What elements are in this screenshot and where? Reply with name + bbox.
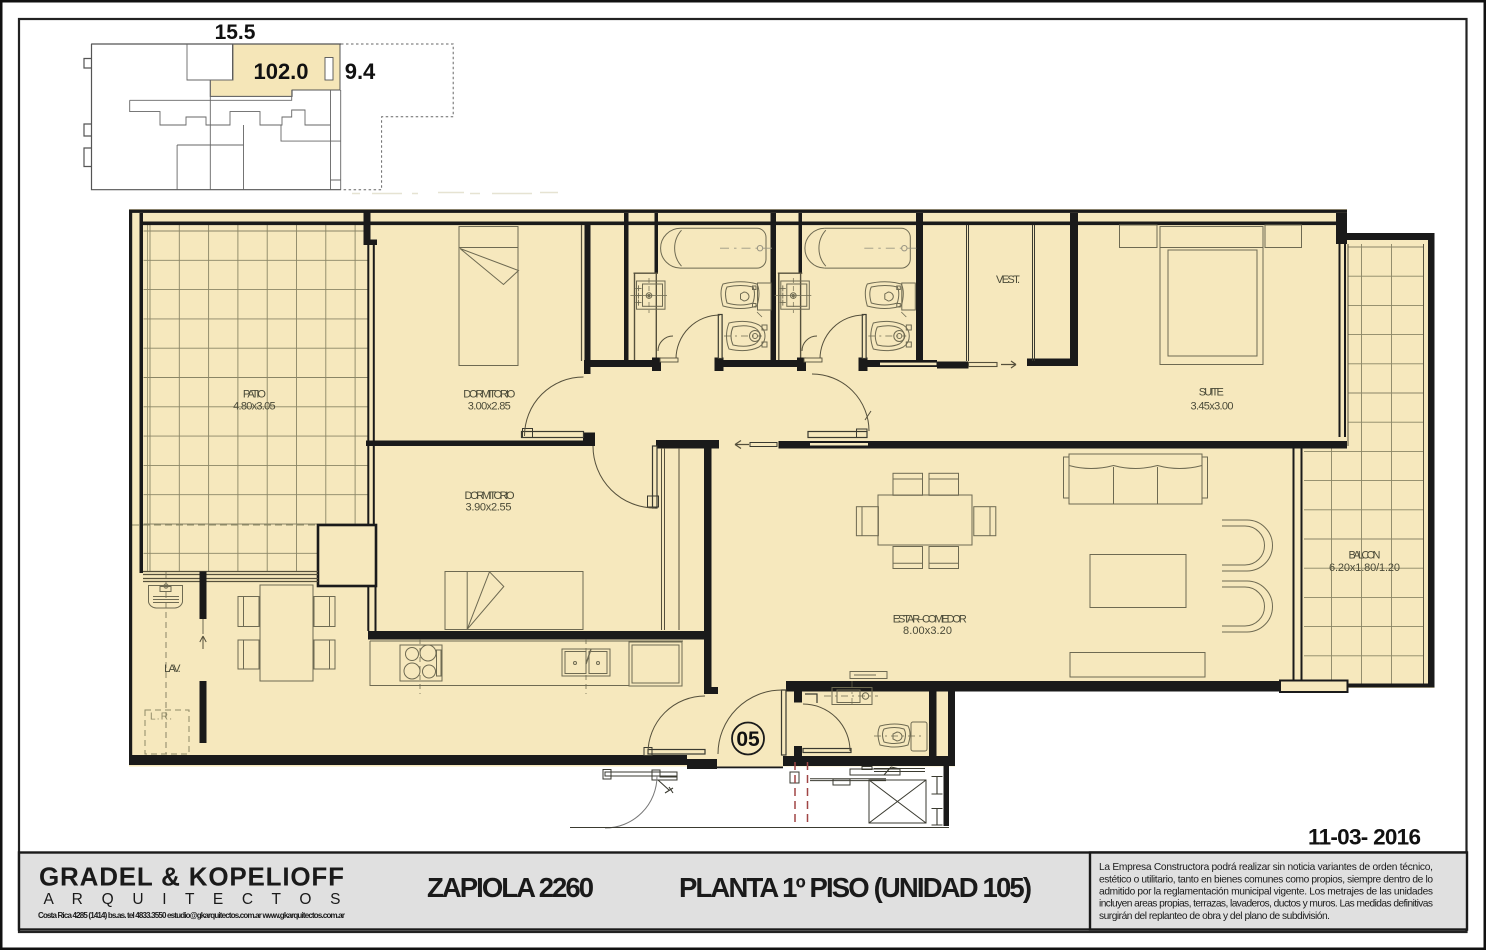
svg-text:15.5: 15.5	[215, 21, 256, 44]
svg-text:102.0: 102.0	[253, 59, 308, 84]
svg-text:9.4: 9.4	[345, 59, 376, 84]
svg-text:ZAPIOLA 2260: ZAPIOLA 2260	[427, 872, 594, 903]
svg-text:L.R.: L.R.	[150, 712, 172, 723]
svg-text:admitido por la reglamentación: admitido por la reglamentación municipal…	[1099, 887, 1433, 898]
svg-text:PATIO: PATIO	[243, 389, 266, 401]
svg-text:DORMITORIO: DORMITORIO	[465, 490, 515, 502]
svg-text:BALCON: BALCON	[1349, 550, 1381, 562]
svg-text:LAV.: LAV.	[164, 663, 181, 675]
svg-text:4.80x3.05: 4.80x3.05	[233, 400, 276, 412]
svg-text:La Empresa Constructora podrá: La Empresa Constructora podrá realizar s…	[1099, 862, 1433, 873]
svg-text:estético o utilitario, tanto e: estético o utilitario, tanto en bienes c…	[1099, 874, 1433, 885]
svg-text:3.00x2.85: 3.00x2.85	[468, 400, 511, 412]
svg-text:3.90x2.55: 3.90x2.55	[466, 502, 512, 514]
svg-text:GRADEL & KOPELIOFF: GRADEL & KOPELIOFF	[39, 862, 344, 892]
svg-text:DORMITORIO: DORMITORIO	[463, 389, 515, 401]
svg-text:6.20x1.80/1.20: 6.20x1.80/1.20	[1329, 562, 1400, 574]
svg-text:3.45x3.00: 3.45x3.00	[1191, 401, 1234, 413]
svg-text:8.00x3.20: 8.00x3.20	[903, 625, 952, 637]
svg-text:VEST.: VEST.	[996, 274, 1020, 286]
svg-text:Costa Rica 4285 (1414) bs.as.: Costa Rica 4285 (1414) bs.as. tel 4833.3…	[38, 911, 345, 920]
svg-text:surgirán del replanteo de obra: surgirán del replanteo de obra y del pla…	[1099, 911, 1330, 922]
svg-text:11-03- 2016: 11-03- 2016	[1308, 825, 1421, 850]
svg-text:05: 05	[736, 728, 760, 751]
svg-text:incluyen areas propias, terraz: incluyen areas propias, terrazas, lavade…	[1099, 899, 1433, 910]
svg-text:PLANTA 1º PISO (UNIDAD 105): PLANTA 1º PISO (UNIDAD 105)	[679, 872, 1032, 903]
svg-text:SUITE: SUITE	[1199, 387, 1224, 399]
svg-text:ESTAR–COMEDOR: ESTAR–COMEDOR	[893, 613, 967, 625]
